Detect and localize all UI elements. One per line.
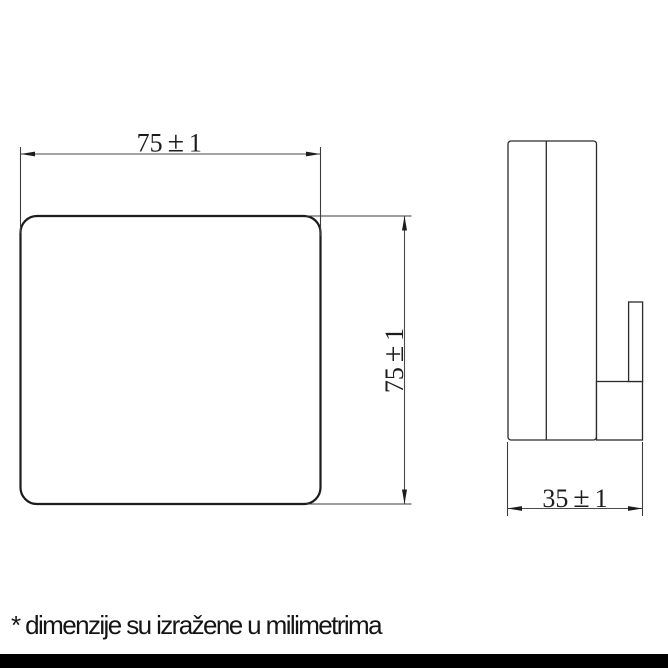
svg-text:75±1: 75±1 bbox=[377, 328, 410, 393]
svg-text:75±1: 75±1 bbox=[137, 126, 202, 159]
svg-text:35±1: 35±1 bbox=[542, 481, 607, 514]
